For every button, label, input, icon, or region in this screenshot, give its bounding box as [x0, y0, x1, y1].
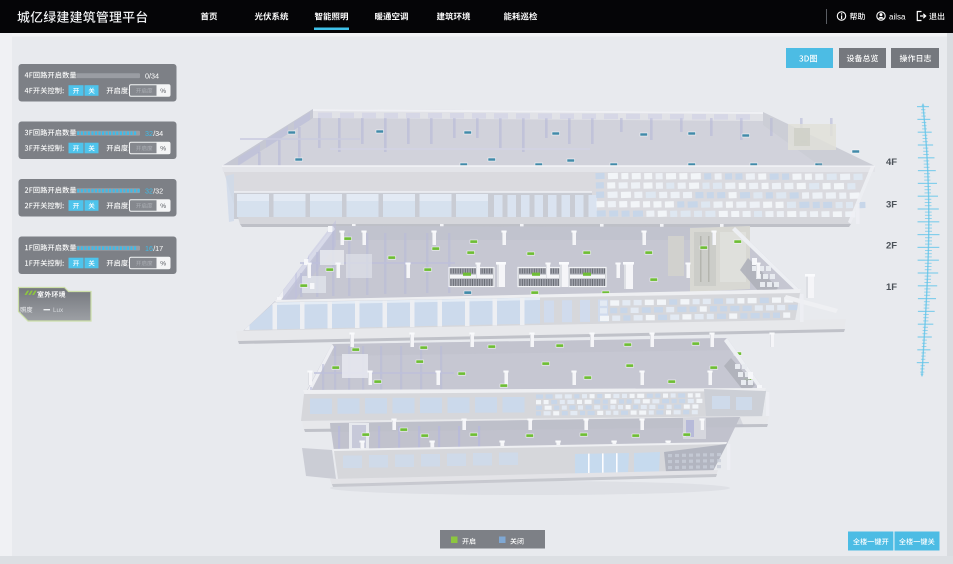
svg-text:/17: /17: [153, 244, 163, 253]
svg-text:%: %: [160, 203, 166, 210]
svg-text:2F: 2F: [886, 241, 897, 252]
svg-text:32: 32: [145, 129, 153, 138]
svg-text:%: %: [160, 261, 166, 268]
svg-text:4F: 4F: [886, 157, 897, 168]
svg-text:ailsa: ailsa: [889, 12, 906, 21]
svg-text:%: %: [160, 146, 166, 153]
svg-text:1F: 1F: [886, 282, 897, 293]
svg-text:32: 32: [145, 186, 153, 195]
svg-text:3F: 3F: [886, 200, 897, 211]
svg-text:/32: /32: [153, 186, 163, 195]
svg-text:Lux: Lux: [53, 307, 64, 314]
svg-text:16: 16: [145, 244, 153, 253]
svg-text:/34: /34: [153, 129, 163, 138]
svg-text:%: %: [160, 88, 166, 95]
svg-text:0/34: 0/34: [145, 71, 159, 80]
